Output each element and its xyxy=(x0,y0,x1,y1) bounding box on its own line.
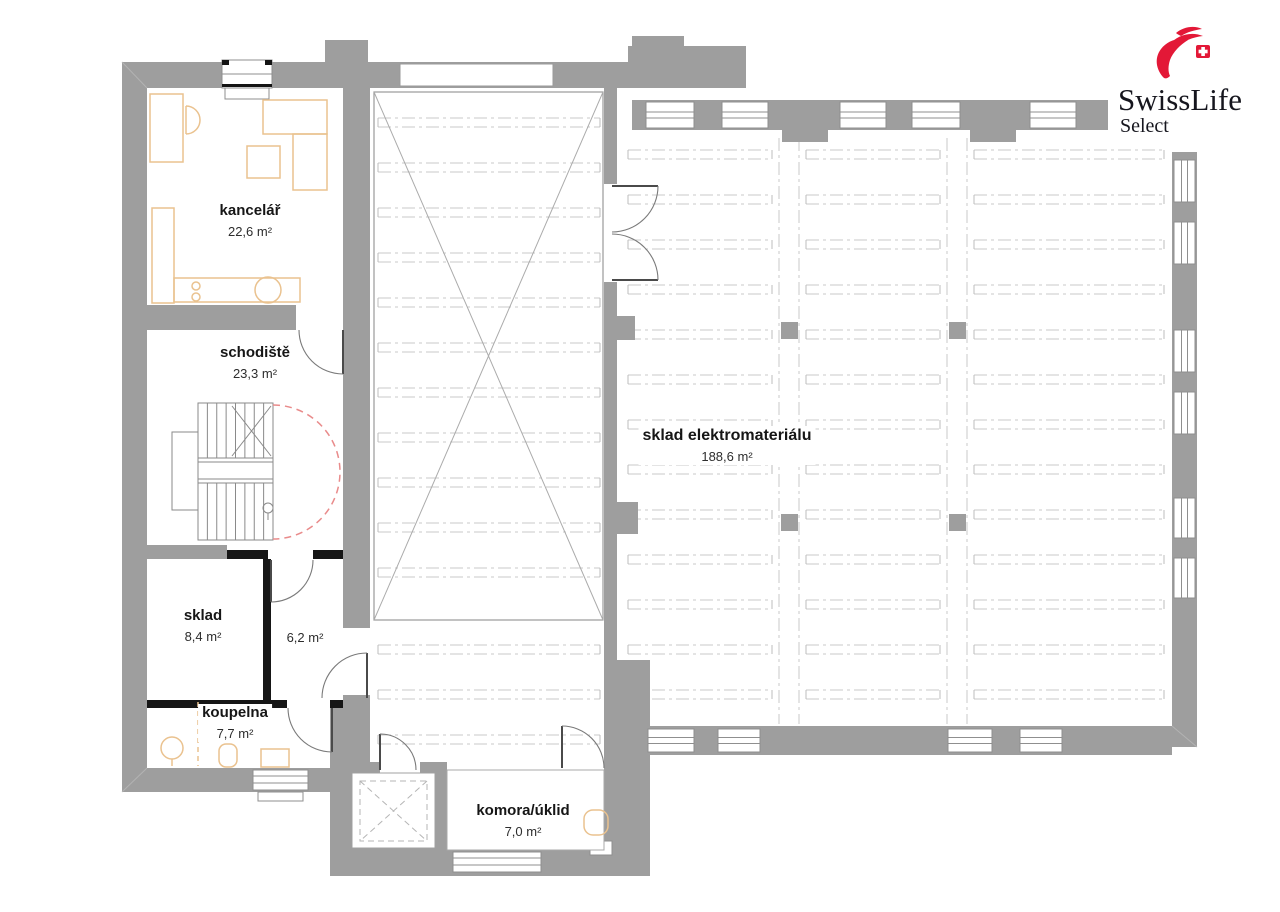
stair-swing-arc xyxy=(273,405,340,539)
room-area: 8,4 m² xyxy=(184,629,222,645)
swisslife-logo-icon xyxy=(1150,24,1214,80)
room-area: 188,6 m² xyxy=(643,449,812,465)
room-name: koupelna xyxy=(202,704,268,723)
room-area: 6,2 m² xyxy=(287,630,324,646)
room-label-6-2: 6,2 m² xyxy=(283,627,328,646)
room-name: komora/úklid xyxy=(476,802,569,821)
room-name: schodiště xyxy=(220,344,290,363)
room-label-schodiste: schodiště 23,3 m² xyxy=(216,344,294,382)
room-area: 7,0 m² xyxy=(476,824,569,840)
room-name: sklad elektromateriálu xyxy=(643,426,812,446)
logo-brand-text: SwissLife xyxy=(1118,82,1280,118)
room-area: 22,6 m² xyxy=(220,224,281,240)
logo-sub-text: Select xyxy=(1120,115,1280,138)
room-label-sklad: sklad 8,4 m² xyxy=(180,607,226,645)
hall-top-opening xyxy=(400,64,553,86)
room-label-komora-uklid: komora/úklid 7,0 m² xyxy=(472,802,573,840)
room-name: sklad xyxy=(184,607,222,626)
room-name: kancelář xyxy=(220,202,281,221)
elevator-shaft xyxy=(352,773,435,848)
room-area: 7,7 m² xyxy=(202,726,268,742)
room-area: 23,3 m² xyxy=(220,366,290,382)
staircase xyxy=(172,403,340,540)
room-label-koupelna: koupelna 7,7 m² xyxy=(198,704,272,742)
wing-windows xyxy=(222,60,612,872)
swisslife-logo: SwissLife Select xyxy=(1118,24,1280,138)
room-label-sklad-elektromaterialu: sklad elektromateriálu 188,6 m² xyxy=(639,426,816,465)
hall-cross-area xyxy=(374,92,603,620)
floor-plan-page: kancelář 22,6 m² schodiště 23,3 m² sklad… xyxy=(0,0,1280,912)
room-label-kancelar: kancelář 22,6 m² xyxy=(216,202,285,240)
